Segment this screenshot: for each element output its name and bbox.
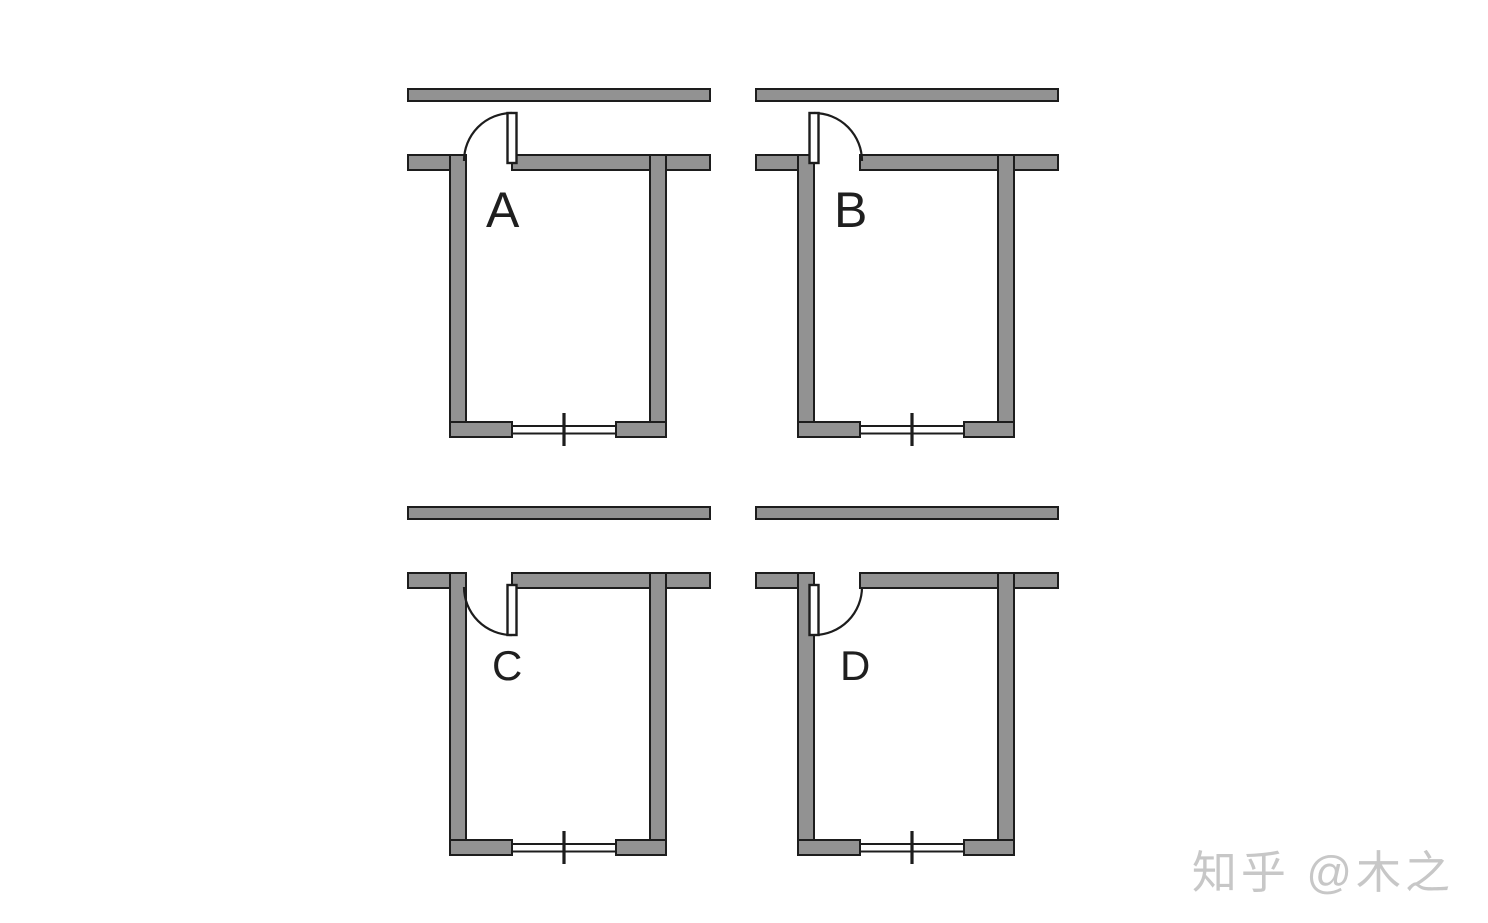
floor-plan-drawing-d	[748, 503, 1068, 873]
room-plan-b: B	[748, 85, 1068, 455]
room-label-b: B	[834, 185, 867, 235]
room-plan-d: D	[748, 503, 1068, 873]
floor-plan-drawing-a	[400, 85, 720, 455]
room-plan-a: A	[400, 85, 720, 455]
figure-canvas: A B C D 知乎 @木之	[0, 0, 1488, 923]
room-label-a: A	[486, 185, 519, 235]
floor-plan-drawing-b	[748, 85, 1068, 455]
room-plan-c: C	[400, 503, 720, 873]
room-label-d: D	[840, 645, 870, 687]
watermark-text: 知乎 @木之	[1192, 836, 1454, 901]
room-label-c: C	[492, 645, 522, 687]
floor-plan-drawing-c	[400, 503, 720, 873]
